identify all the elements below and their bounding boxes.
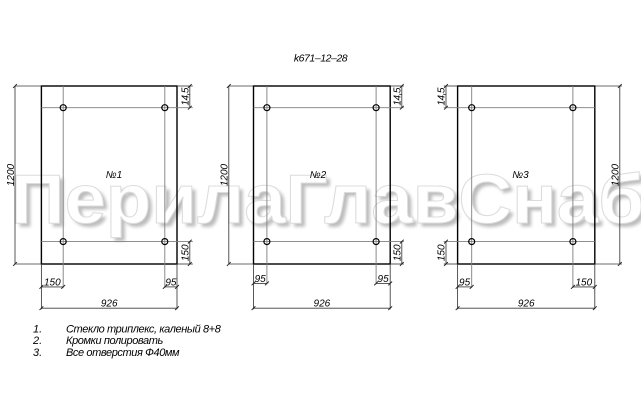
svg-text:150: 150 — [575, 277, 592, 288]
svg-text:2.: 2. — [32, 335, 42, 347]
svg-text:1.: 1. — [33, 323, 42, 335]
svg-text:150: 150 — [437, 244, 448, 261]
svg-text:Все отверстия Ф40мм: Все отверстия Ф40мм — [66, 347, 180, 359]
svg-text:Стекло триплекс, каленый 8+8: Стекло триплекс, каленый 8+8 — [66, 323, 222, 335]
svg-text:№1: №1 — [106, 170, 122, 181]
svg-text:1200: 1200 — [6, 163, 17, 186]
svg-text:№3: №3 — [512, 170, 529, 181]
svg-text:14,5: 14,5 — [437, 87, 448, 106]
svg-text:k671–12–28: k671–12–28 — [294, 53, 348, 65]
svg-text:1200: 1200 — [611, 163, 622, 186]
svg-text:926: 926 — [314, 298, 331, 309]
svg-text:3.: 3. — [33, 347, 42, 359]
svg-text:926: 926 — [518, 298, 535, 309]
svg-text:Кромки полировать: Кромки полировать — [66, 335, 163, 347]
svg-text:14,5: 14,5 — [392, 87, 403, 106]
svg-text:95: 95 — [255, 274, 267, 285]
svg-text:14,5: 14,5 — [180, 87, 191, 106]
svg-text:150: 150 — [392, 244, 403, 261]
svg-text:№2: №2 — [310, 170, 327, 181]
svg-text:150: 150 — [44, 277, 61, 288]
svg-text:150: 150 — [180, 244, 191, 261]
svg-text:95: 95 — [165, 277, 177, 288]
svg-text:1200: 1200 — [220, 163, 231, 186]
svg-text:926: 926 — [101, 298, 118, 309]
svg-text:95: 95 — [459, 277, 471, 288]
svg-text:95: 95 — [378, 274, 390, 285]
